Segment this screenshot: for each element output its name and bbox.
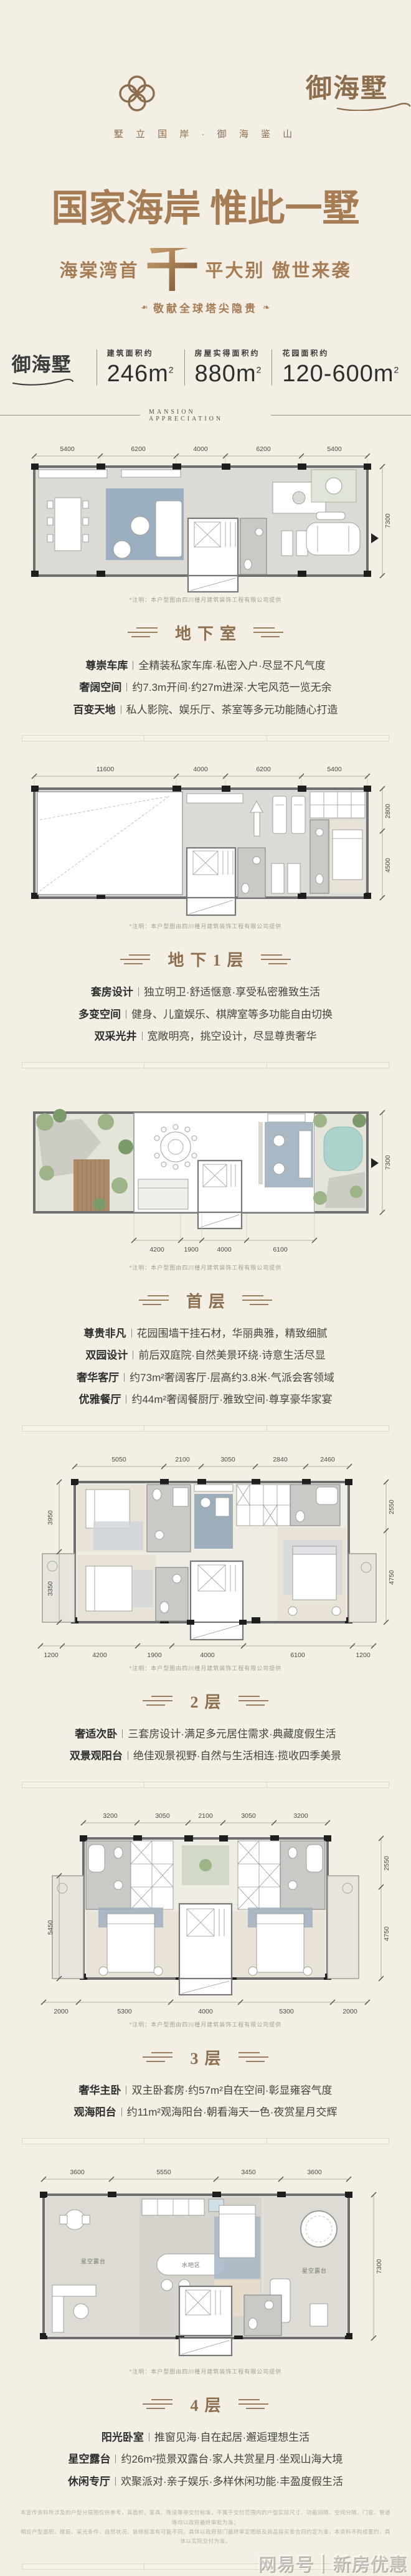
plan-source-note: *注明：本户型图由四川槿月建筑装饰工程有限公司提供: [0, 2367, 411, 2375]
stair-core: [179, 2286, 232, 2355]
plan-source-note: *注明：本户型图由四川槿月建筑装饰工程有限公司提供: [0, 1263, 411, 1271]
entry-arrow-icon: [371, 533, 379, 543]
stat-separator: [97, 349, 97, 386]
dim-label: 4000: [193, 445, 208, 453]
ornament-lines: [128, 627, 158, 637]
dim-label: 4000: [200, 1652, 215, 1659]
dim-label: 2550: [388, 1499, 395, 1514]
dim-label: 1900: [184, 1246, 199, 1253]
stair-core: [187, 1561, 247, 1640]
floorplan-2f-drawing: 5050 2100 3050 2840 2460: [0, 1448, 411, 1663]
dim-label: 3200: [103, 1812, 118, 1820]
rear-garden-pool: [313, 1114, 366, 1211]
section-divider-strip: [22, 1782, 389, 1788]
section-divider-strip: [22, 1062, 389, 1068]
section-title-2f: 2层: [0, 1690, 411, 1713]
bathroom-a: [147, 1485, 191, 1552]
dim-label: 5050: [111, 1456, 126, 1463]
brand-header: 御海墅 墅 立 国 岸 · 御 海 鉴 山: [0, 0, 411, 161]
room-label: 星空露台: [81, 2258, 106, 2265]
terrace-left: [52, 1876, 83, 1979]
wardrobe-top-right: [237, 1485, 290, 1526]
dim-label: 2000: [342, 2008, 357, 2015]
ornament-lines: [120, 954, 150, 964]
master-suite-right: [232, 1908, 325, 1977]
bathroom-c: [156, 1567, 188, 1621]
ornament-lines: [239, 1696, 268, 1706]
dim-label: 2100: [175, 1456, 190, 1463]
dim-label: 1200: [356, 1652, 371, 1659]
section-title-3f: 3层: [0, 2046, 411, 2069]
bathroom: [238, 848, 265, 898]
floorplan-b1-drawing: 11600 4000 6200 5400: [0, 758, 411, 921]
dim-label: 4750: [388, 1570, 395, 1585]
dim-label: 2100: [198, 1812, 213, 1820]
brand-tagline: 墅 立 国 岸 · 御 海 鉴 山: [0, 127, 411, 140]
plan-source-note: *注明：本户型图由四川槿月建筑装饰工程有限公司提供: [0, 2020, 411, 2028]
stair-core: [188, 518, 238, 592]
section-divider-strip: [22, 735, 389, 741]
knot-logo-icon: [117, 74, 157, 113]
hero-section: 国家海岸 惟此一墅 海棠湾首 千 平大别 傲世来袭 ❧ 敬献全球塔尖隐贵 ❧: [0, 188, 411, 315]
floorplan-basement-drawing: 5400 6200 4000 6200 5400: [0, 439, 411, 594]
front-garden: [35, 1109, 134, 1211]
divider-label: MANSION APPRECIATION: [149, 409, 262, 422]
page-footer: 本宣传资料所涉及的户型分层图仅供参考，其面积、家具、陈设等非交付标准，不属于交付…: [0, 2508, 411, 2574]
dim-label: 3450: [241, 2169, 256, 2176]
star-terrace-left: 星空露台: [46, 2197, 139, 2336]
dim-label: 3950: [47, 1510, 54, 1525]
feature-list: 奢华主卧双主卧套房·约57m²自在空间·彰显雍容气度 观海阳台约11m²观海阳台…: [0, 2083, 411, 2121]
dim-label: 1900: [147, 1652, 162, 1659]
ornament-lines: [261, 954, 291, 964]
plan-source-note: *注明：本户型图由四川槿月建筑装饰工程有限公司提供: [0, 1664, 411, 1672]
feature-list: 尊贵非凡花园围墙干挂石材，华丽典雅，精致细腻 双园设计前后双庭院·自然美景环绕·…: [0, 1326, 411, 1408]
hero-title: 国家海岸 惟此一墅: [0, 188, 411, 229]
logo-swash-flourish: [12, 377, 74, 386]
mansion-appreciation-divider: MANSION APPRECIATION: [0, 409, 411, 422]
dim-label: 6100: [273, 1246, 288, 1253]
hero-ribbon-text: 敬献全球塔尖隐贵: [153, 300, 258, 315]
dim-label: 5550: [156, 2169, 171, 2176]
floorplan-first-drawing: 7300 4200 1900 4000 6100: [0, 1085, 411, 1262]
dim-label: 4000: [217, 1246, 232, 1253]
landscape-mat: [311, 470, 356, 502]
bedroom-top-left: [77, 1485, 147, 1552]
dim-label: 7300: [384, 1155, 392, 1170]
dim-label: 3350: [47, 1581, 54, 1596]
legal-disclaimer-line2: 相应户型面积、楼层、采光条件、自然状况、装修标准有可能不同，具体以政府部门最终审…: [19, 2527, 392, 2547]
floorplan-section-2f: 5050 2100 3050 2840 2460: [0, 1448, 411, 1788]
terrace-right: [328, 1876, 359, 1979]
master-suite-left: [86, 1908, 179, 1977]
platform-watermark: 网易号｜新房优惠: [258, 2550, 407, 2576]
dim-label: 5400: [327, 766, 342, 773]
dim-label: 4750: [383, 1926, 390, 1941]
bathroom: [244, 2295, 281, 2336]
lightwell-void: [37, 792, 182, 895]
hero-sub-right: 平大别 傲世来袭: [205, 256, 351, 282]
stat-garden-area: 花园面积约 120-600m2: [282, 348, 399, 387]
dim-label: 1200: [44, 1652, 59, 1659]
guest-suite: [310, 792, 365, 893]
dim-label: 3200: [293, 1812, 308, 1820]
stat-building-area: 建筑面积约 246m2: [107, 348, 174, 387]
section-title-first: 首层: [0, 1289, 411, 1312]
stat-actual-area: 房屋实得面积约 880m2: [195, 348, 262, 387]
section-title-4f: 4层: [0, 2393, 411, 2416]
feature-list: 尊崇车库全精装私家车库·私密入户·尽显不凡气度 奢阔空间约7.3m开间·约27m…: [0, 658, 411, 718]
ornament-lines: [242, 1295, 272, 1305]
dim-label: 2550: [383, 1856, 390, 1871]
stat-separator: [184, 349, 185, 386]
feature-list: 套房设计独立明卫·舒适惬意·享受私密雅致生活 多变空间健身、儿童娱乐、棋牌室等多…: [0, 984, 411, 1045]
dim-label: 11600: [97, 766, 115, 773]
bathroom-right: [280, 1841, 325, 1909]
dim-label: 3050: [241, 1812, 256, 1820]
hero-sub-left: 海棠湾首: [59, 256, 139, 282]
leaf-ornament-icon: ❧: [141, 302, 148, 313]
floorplan-section-first: 7300 4200 1900 4000 6100 *注明：本户型图由四川槿月建筑…: [0, 1085, 411, 1432]
floorplan-3f-drawing: 3200 3050 2100 3050 3200: [0, 1804, 411, 2019]
feature-list: 奢适次卧三套房设计·满足多元居住需求·典藏度假生活 双景观阳台绝佳观景视野·自然…: [0, 1726, 411, 1764]
dim-label: 7300: [376, 2259, 383, 2274]
living-room: [258, 1122, 313, 1187]
hall-rug: [182, 1845, 229, 1885]
dim-label: 4000: [193, 766, 208, 773]
dim-label: 5400: [60, 445, 75, 453]
ornament-lines: [239, 2052, 268, 2062]
stair-core: [179, 1904, 232, 1995]
dim-label: 2000: [54, 2008, 68, 2015]
bedroom-bottom-left: [77, 1555, 156, 1621]
area-stats-bar: 御海墅 建筑面积约 246m2 房屋实得面积约 880m2 花园面积约 120-…: [0, 348, 411, 387]
dim-label: 7300: [384, 513, 392, 528]
feature-list: 阳光卧室推窗见海·自在起居·邂逅理想生活 星空露台约26m²揽景双露台·家人共赏…: [0, 2430, 411, 2490]
leaf-ornament-icon: ❧: [263, 302, 270, 313]
ornament-lines: [143, 2399, 172, 2409]
stair-core: [187, 848, 235, 915]
wardrobe-left: [131, 1841, 173, 1909]
ornament-lines: [239, 2399, 268, 2409]
ornament-lines: [143, 2052, 172, 2062]
dim-label: 4200: [149, 1246, 164, 1253]
dim-label: 5300: [279, 2008, 294, 2015]
dim-label: 4200: [92, 1652, 107, 1659]
plan-source-note: *注明：本户型图由四川槿月建筑装饰工程有限公司提供: [0, 922, 411, 930]
floorplan-4f-drawing: 3600 5550 3450 3600 星空露台 水吧区: [0, 2160, 411, 2366]
dim-label: 6200: [256, 445, 271, 453]
dim-label: 3050: [155, 1812, 170, 1820]
dim-label: 3050: [220, 1456, 235, 1463]
floorplan-section-3f: 3200 3050 2100 3050 3200: [0, 1804, 411, 2144]
dim-label: 4500: [384, 858, 392, 873]
ornament-lines: [139, 1295, 169, 1305]
plan-source-note: *注明：本户型图由四川槿月建筑装饰工程有限公司提供: [0, 596, 411, 604]
ornament-lines: [143, 1696, 172, 1706]
dim-label: 6200: [256, 766, 271, 773]
bathroom: [240, 518, 267, 574]
dim-label: 6200: [131, 445, 146, 453]
stat-separator: [272, 349, 272, 386]
dim-label: 5400: [327, 445, 342, 453]
floorplan-section-b1: 11600 4000 6200 5400: [0, 758, 411, 1068]
section-title-basement: 地下室: [0, 621, 411, 644]
floorplan-section-4f: 3600 5550 3450 3600 星空露台 水吧区: [0, 2160, 411, 2490]
dim-label: 3600: [307, 2169, 322, 2176]
floorplan-section-basement: 5400 6200 4000 6200 5400: [0, 439, 411, 742]
hero-big-character: 千: [145, 248, 199, 291]
room-label: 水吧区: [182, 2261, 201, 2268]
dim-label: 5300: [117, 2008, 132, 2015]
dim-label: 2800: [384, 804, 392, 819]
master-bedroom: [278, 1528, 346, 1621]
legal-disclaimer-line1: 本宣传资料所涉及的户型分层图仅供参考，其面积、家具、陈设等非交付标准，不属于交付…: [19, 2508, 392, 2527]
brand-logo-text: 御海墅: [283, 76, 411, 102]
ornament-lines: [253, 627, 283, 637]
dim-label: 3600: [70, 2169, 85, 2176]
dim-label: 2460: [320, 1456, 335, 1463]
bathroom-b: [290, 1485, 340, 1526]
dim-label: 5450: [47, 1920, 54, 1935]
bathroom-left: [86, 1841, 131, 1909]
balcony-right: [349, 1554, 376, 1622]
stats-logo-text: 御海墅: [12, 349, 74, 377]
wardrobe-right: [238, 1841, 280, 1909]
dim-label: 2840: [273, 1456, 288, 1463]
stair-core: [198, 1161, 242, 1229]
room-label: 星空露台: [302, 2267, 327, 2274]
dim-label: 6100: [290, 1652, 305, 1659]
entry-arrow-icon: [371, 1158, 379, 1168]
section-divider-strip: [22, 1425, 389, 1432]
laundry-hall: [194, 1485, 233, 1549]
section-divider-strip: [22, 2138, 389, 2144]
dim-label: 4000: [198, 2008, 213, 2015]
section-title-b1: 地下1层: [0, 948, 411, 971]
